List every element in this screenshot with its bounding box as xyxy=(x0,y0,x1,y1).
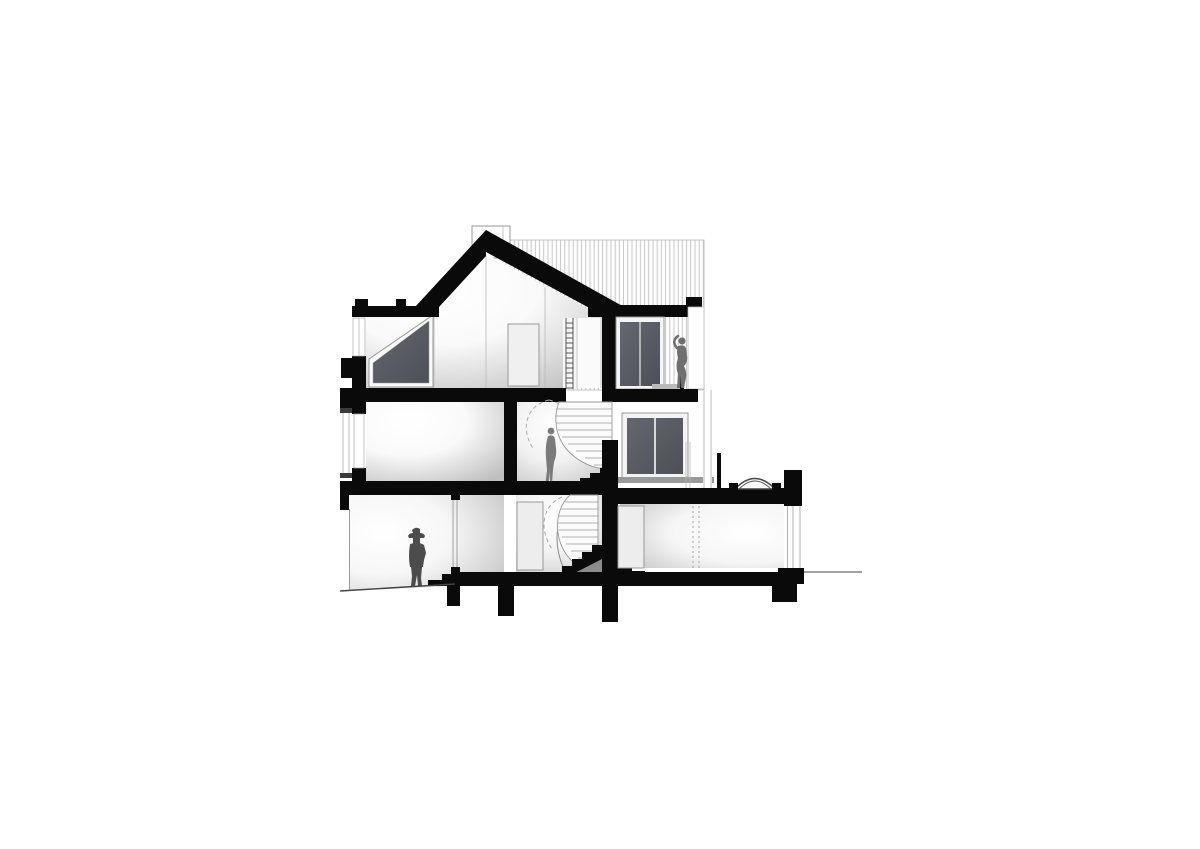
column-cap-top xyxy=(451,495,460,500)
wall-block-outer xyxy=(341,358,353,378)
sliding-door-unit xyxy=(616,317,664,389)
foundation-pier-2 xyxy=(498,586,514,616)
attic-door xyxy=(508,324,539,386)
middle-room-interior xyxy=(366,402,504,481)
ladder xyxy=(563,318,576,389)
outer-skin-window xyxy=(341,412,351,474)
roof-right-upstand xyxy=(686,297,702,306)
wing-roof-slab xyxy=(612,488,786,504)
outer-window-sill xyxy=(340,473,352,478)
attic-pier xyxy=(576,318,602,388)
wall-inner-glazing xyxy=(354,414,364,468)
figure-head xyxy=(548,428,555,435)
roof-cap-left xyxy=(355,299,368,307)
foundation-pier-1 xyxy=(447,586,460,606)
lower-floor-door xyxy=(517,502,543,570)
wing-parapet xyxy=(784,470,802,506)
figure-torso xyxy=(409,543,426,567)
middle-floor-slab xyxy=(340,481,612,495)
stair-core-wall-middle xyxy=(504,402,517,481)
outer-window-head xyxy=(340,408,352,413)
right-footing-pier xyxy=(783,584,797,602)
roof-left-flat-band xyxy=(352,306,439,317)
roof-right-band xyxy=(588,305,702,317)
right-wall-footing xyxy=(778,568,804,584)
ground-slab xyxy=(451,572,786,586)
wing-interior xyxy=(620,504,784,568)
wing-door xyxy=(618,506,644,568)
stair-core-wall-lower xyxy=(602,440,618,622)
balcony-slab xyxy=(602,389,698,402)
attic-floor-slab xyxy=(340,388,566,402)
window-sill xyxy=(612,477,714,483)
architectural-section-canvas xyxy=(0,0,1200,849)
wing-roof-post xyxy=(717,453,721,488)
dome-foot-left xyxy=(729,483,738,490)
figure-head xyxy=(678,337,685,344)
wall-sill-block xyxy=(352,468,366,481)
terrace-pier xyxy=(688,307,704,389)
middle-right-window-bay xyxy=(612,390,714,488)
wall-block xyxy=(352,356,366,389)
dome-foot-right xyxy=(772,483,781,490)
wall-head-block xyxy=(352,402,366,414)
roof-cap-right xyxy=(396,299,406,307)
